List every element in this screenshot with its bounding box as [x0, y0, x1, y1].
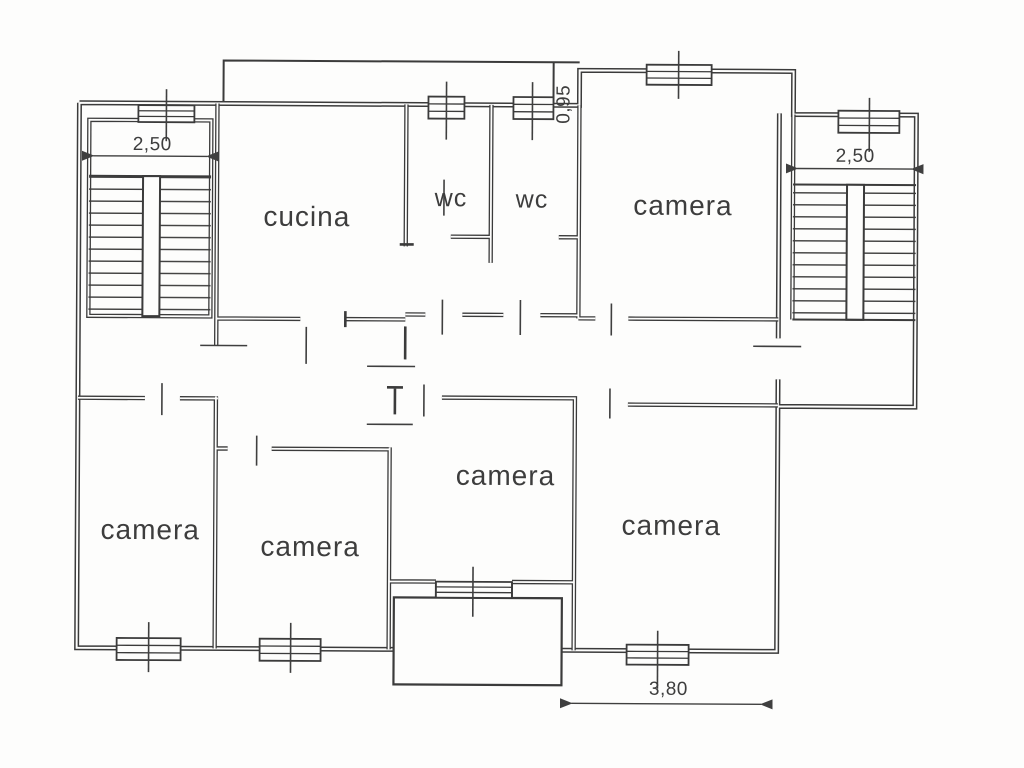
room-label-bedroom-bottom-center: camera [456, 460, 556, 493]
room-label-bedroom-top-right: camera [633, 190, 733, 223]
window-bottom-left [116, 622, 180, 672]
right-staircase [792, 184, 916, 320]
window-top-wc-left [428, 82, 464, 140]
dimension-label-top-balcony: 0,95 [553, 85, 575, 124]
left-staircase [88, 176, 211, 317]
window-right-staircase [838, 98, 899, 152]
dimension-label-right-staircase: 2,50 [836, 146, 875, 168]
hallway-wall-stubs [345, 244, 414, 414]
room-label-wc-right: wc [516, 186, 549, 215]
room-label-kitchen: cucina [263, 201, 350, 233]
window-balcony-center [436, 567, 512, 617]
floor-plan-page: cucina wc wc camera camera camera camera… [0, 0, 1024, 768]
room-label-bedroom-bottom-left: camera [100, 514, 200, 547]
room-label-bedroom-bottom-midleft: camera [260, 531, 360, 564]
window-bottom-midleft [259, 623, 320, 673]
window-symbols [116, 48, 899, 690]
window-top-bedroom [646, 51, 711, 99]
window-top-wc-right [513, 82, 553, 140]
room-label-wc-left: wc [435, 184, 468, 213]
floor-plan: cucina wc wc camera camera camera camera… [0, 0, 1024, 768]
dimension-label-bottom-room: 3,80 [649, 679, 688, 701]
floor-plan-drawing [0, 0, 1024, 768]
exterior-walls [77, 68, 917, 652]
room-label-bedroom-bottom-right: camera [621, 510, 721, 543]
dimension-label-left-staircase: 2,50 [133, 134, 172, 156]
